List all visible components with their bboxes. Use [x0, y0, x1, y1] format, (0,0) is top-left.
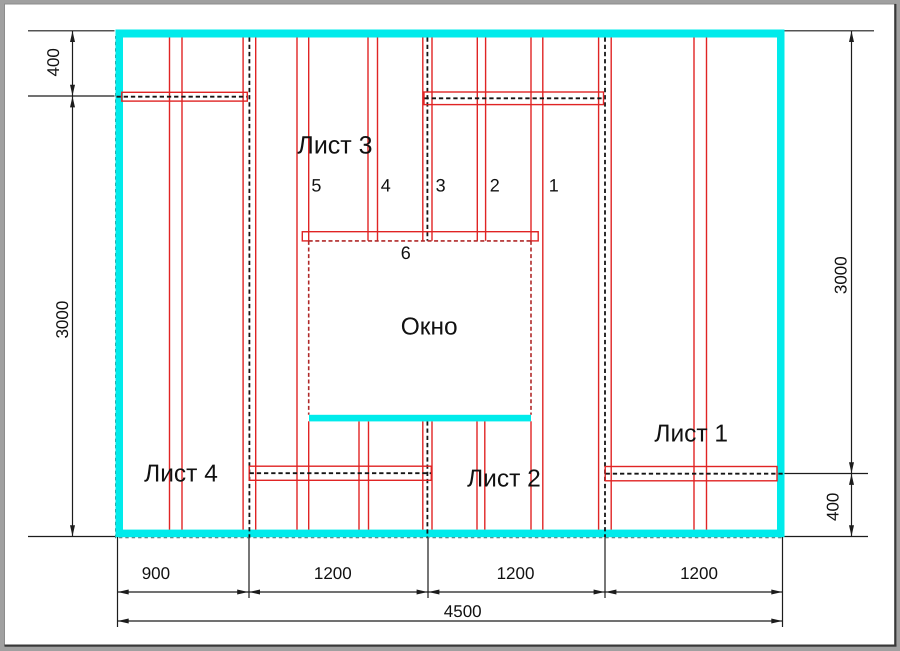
svg-text:900: 900 — [142, 564, 170, 583]
svg-text:3000: 3000 — [832, 256, 851, 294]
svg-text:3: 3 — [436, 175, 446, 195]
svg-text:400: 400 — [44, 48, 63, 76]
svg-text:2: 2 — [490, 175, 500, 195]
svg-text:1200: 1200 — [680, 564, 718, 583]
svg-text:4500: 4500 — [444, 602, 482, 621]
svg-text:Лист 4: Лист 4 — [144, 461, 218, 488]
svg-text:1: 1 — [549, 175, 559, 195]
svg-text:6: 6 — [401, 243, 411, 263]
svg-text:4: 4 — [381, 175, 391, 195]
svg-text:1200: 1200 — [497, 564, 535, 583]
svg-text:Лист 3: Лист 3 — [297, 132, 372, 160]
svg-text:5: 5 — [311, 175, 321, 195]
svg-text:Лист 1: Лист 1 — [654, 420, 728, 447]
svg-text:Окно: Окно — [401, 313, 458, 340]
svg-text:400: 400 — [823, 493, 842, 521]
svg-text:Лист 2: Лист 2 — [467, 465, 541, 492]
svg-text:1200: 1200 — [314, 564, 352, 583]
svg-text:3000: 3000 — [53, 301, 72, 339]
